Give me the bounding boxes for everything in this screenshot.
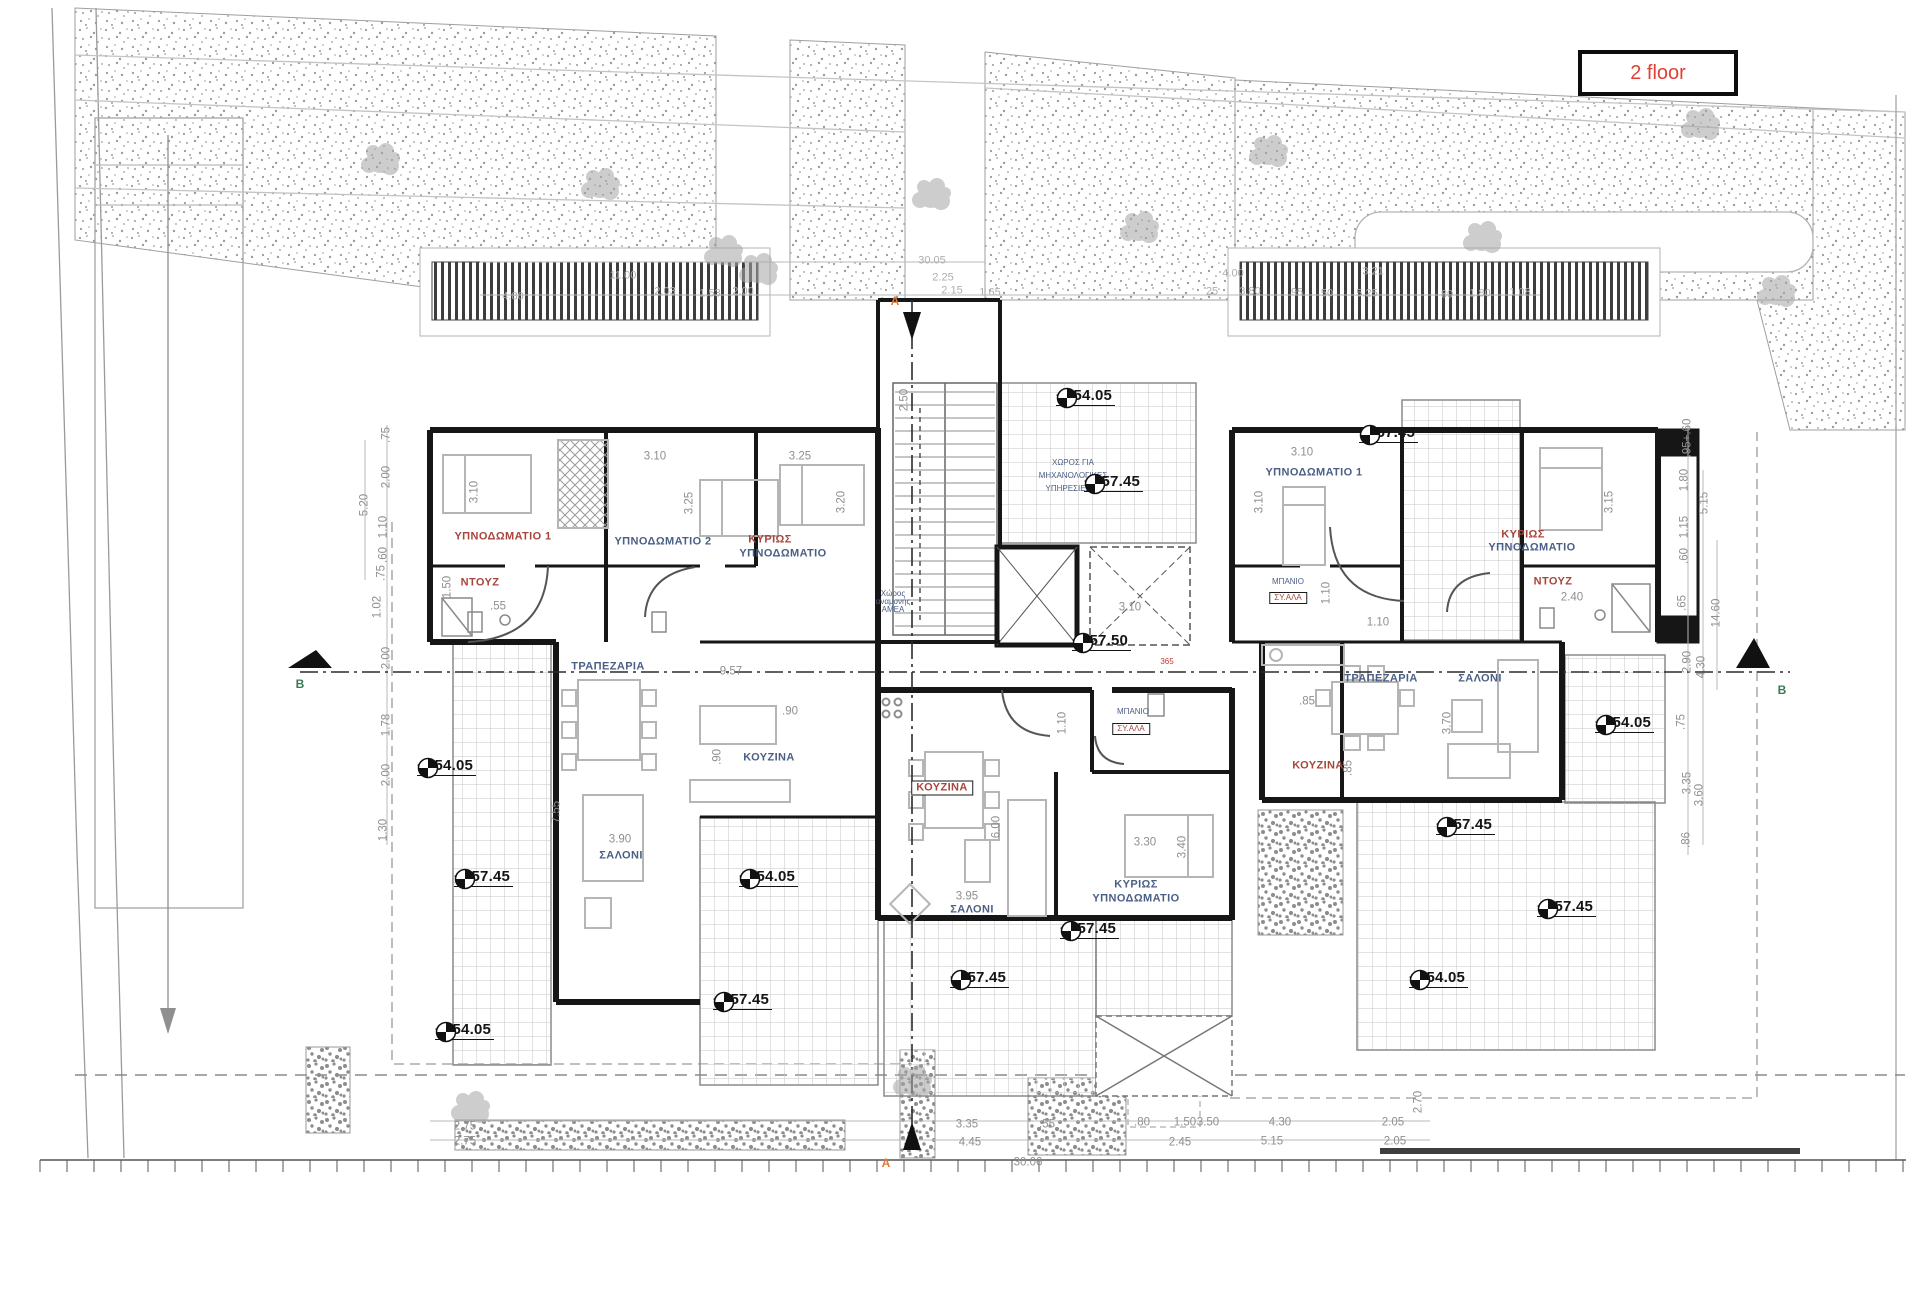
- elevator-shafts: [997, 547, 1190, 645]
- staircase: [893, 383, 997, 635]
- tiled-verandas: [453, 383, 1665, 1096]
- road-ruler: [40, 1151, 1906, 1172]
- floor-badge: 2 floor: [1578, 50, 1738, 96]
- floor-plan-canvas: ΥΠΝΟΔΩΜΑΤΙΟ 1ΥΠΝΟΔΩΜΑΤΙΟ 2ΚΥΡΙΩΣΥΠΝΟΔΩΜΑ…: [0, 0, 1920, 1293]
- plan-drawing: [0, 0, 1920, 1293]
- driveway-arrow: [160, 1008, 176, 1034]
- floor-badge-label: 2 floor: [1630, 62, 1686, 85]
- void-crossed-box: [1096, 1016, 1232, 1096]
